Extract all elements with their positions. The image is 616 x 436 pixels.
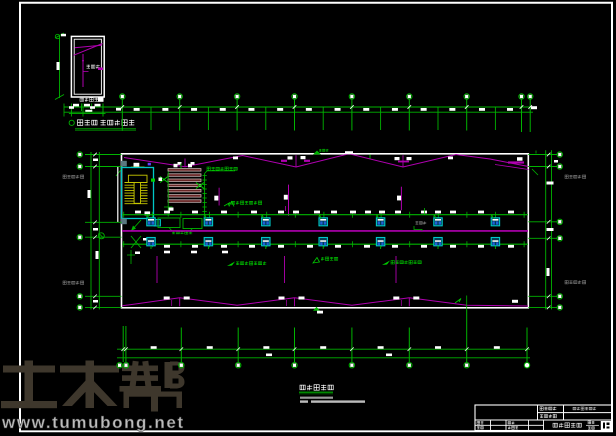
- svg-text:www.tumubong.net: www.tumubong.net: [1, 413, 185, 432]
